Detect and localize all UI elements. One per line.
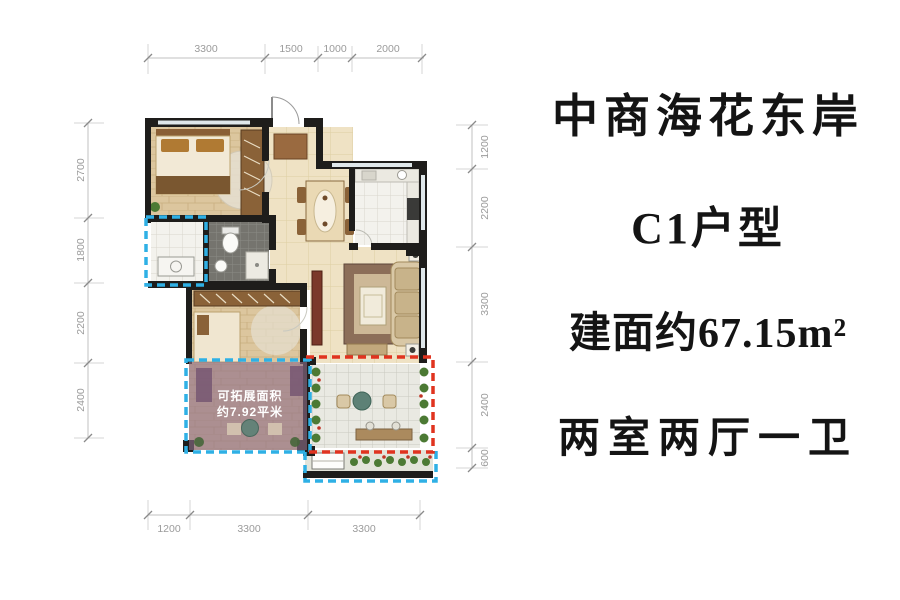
dimension-right: 1200 2200 3300 2400 600 — [456, 121, 491, 472]
dim-label: 1200 — [479, 135, 491, 159]
sofa — [196, 368, 212, 402]
plant-icon — [420, 368, 429, 377]
stove-icon — [362, 171, 376, 180]
blanket — [156, 176, 230, 194]
plant-icon — [420, 434, 429, 443]
dimension-left: 2700 1800 2200 2400 — [74, 119, 104, 442]
balcony-chair — [383, 395, 396, 408]
sofa-cushion — [395, 316, 420, 338]
dim-label: 2200 — [479, 196, 491, 220]
unit-type: C1户型 — [522, 192, 894, 256]
dim-label: 2400 — [479, 393, 491, 417]
cooktop-icon — [407, 198, 419, 220]
dim-label: 2000 — [376, 43, 400, 55]
sink-icon — [215, 260, 227, 272]
pillow — [196, 139, 224, 152]
dim-label: 3300 — [194, 43, 218, 55]
door-mat — [274, 134, 307, 159]
dimension-top: 3300 1500 1000 2000 — [144, 43, 426, 74]
chair — [297, 219, 306, 235]
balcony-bench — [356, 429, 412, 440]
pillow — [161, 139, 189, 152]
chair — [297, 187, 306, 203]
plant-icon — [312, 384, 321, 393]
balcony-table — [353, 392, 371, 410]
flower-icon — [317, 378, 321, 382]
table-decor — [323, 196, 328, 201]
chair — [268, 423, 282, 435]
plant-icon — [374, 459, 382, 467]
dim-label: 2700 — [75, 158, 87, 182]
floor-lamp — [366, 422, 374, 430]
floor-plan-page: 可拓展面积 约7.92平米 3300 1500 1000 2000 2700 1… — [0, 0, 900, 600]
flower-icon — [419, 394, 423, 398]
dim-label: 1500 — [279, 43, 303, 55]
flower-icon — [428, 455, 432, 459]
wardrobe — [241, 130, 264, 216]
drain-icon — [255, 263, 259, 267]
pillow — [197, 315, 209, 335]
floor-plan: 可拓展面积 约7.92平米 3300 1500 1000 2000 2700 1… — [0, 0, 520, 600]
plant-icon — [422, 458, 430, 466]
table-decor — [323, 222, 328, 227]
table — [242, 420, 259, 437]
plant-icon — [312, 434, 321, 443]
tv-cabinet — [312, 271, 322, 345]
entry-door-arc — [272, 97, 299, 124]
bench — [347, 344, 387, 355]
plant-icon — [312, 368, 321, 377]
room-layout: 两室两厅一卫 — [522, 404, 894, 465]
dim-label: 3300 — [479, 292, 491, 316]
dim-label: 1000 — [323, 43, 347, 55]
expand-area-label-1: 可拓展面积 — [217, 388, 282, 403]
plant-icon — [312, 400, 321, 409]
chair — [227, 423, 241, 435]
plant-icon — [398, 458, 406, 466]
dim-label: 3300 — [352, 523, 376, 535]
dim-label: 600 — [479, 449, 491, 467]
chair — [290, 366, 303, 396]
plant-icon — [420, 400, 429, 409]
flower-icon — [317, 426, 321, 430]
plant-icon — [420, 384, 429, 393]
flower-icon — [406, 455, 410, 459]
info-panel: 中商海花东岸 C1户型 建面约67.15m² 两室两厅一卫 — [522, 0, 894, 600]
plant-icon — [150, 202, 160, 212]
floor-lamp — [392, 422, 400, 430]
plant-icon — [410, 456, 418, 464]
sofa-cushion — [395, 292, 420, 314]
plant-icon — [420, 416, 429, 425]
project-title: 中商海花东岸 — [522, 80, 894, 146]
plant-icon — [312, 416, 321, 425]
rug — [251, 305, 301, 355]
plant-icon — [194, 437, 204, 447]
flower-icon — [382, 455, 386, 459]
plant-icon — [290, 437, 300, 447]
expand-area-label-2: 约7.92平米 — [217, 404, 283, 419]
utility-room — [158, 257, 194, 276]
dim-label: 3300 — [237, 523, 261, 535]
balcony-chair — [337, 395, 350, 408]
plant-icon — [362, 456, 370, 464]
plant-icon — [350, 458, 358, 466]
sofa-cushion — [395, 268, 420, 290]
built-area: 建面约67.15m² — [522, 299, 894, 360]
bed-headboard — [156, 129, 230, 136]
side-table-decor — [410, 347, 416, 353]
dim-label: 1200 — [157, 523, 181, 535]
toilet-icon — [223, 233, 239, 253]
dim-label: 1800 — [75, 238, 87, 262]
flower-icon — [358, 455, 362, 459]
dim-label: 2400 — [75, 388, 87, 412]
washer-icon — [158, 257, 194, 276]
plant-icon — [386, 456, 394, 464]
dimension-bottom: 1200 3300 3300 — [144, 500, 424, 535]
dim-label: 2200 — [75, 311, 87, 335]
sink-icon — [398, 171, 407, 180]
